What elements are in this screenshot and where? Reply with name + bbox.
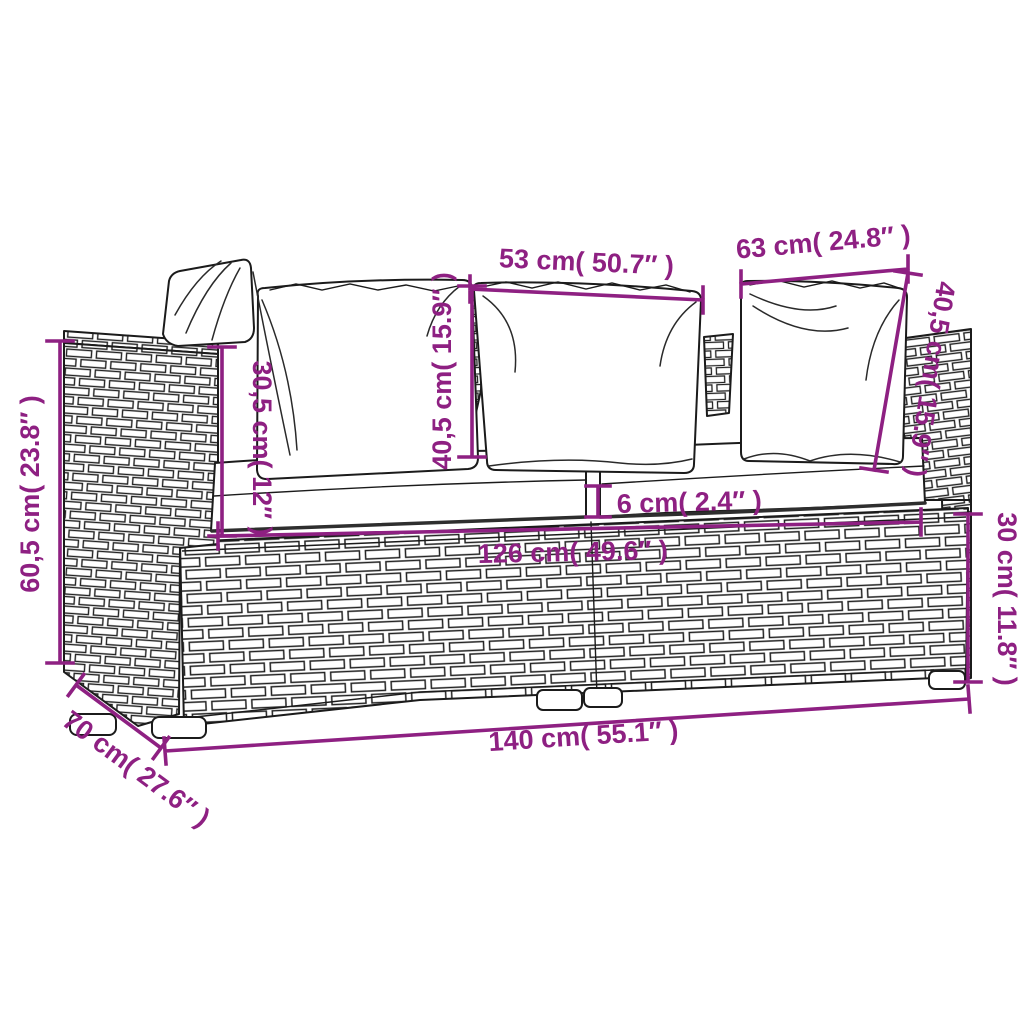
back-post-center	[704, 334, 733, 416]
back-pillow-right	[741, 280, 907, 464]
sofa-foot-middle-left	[537, 690, 582, 710]
back-pillow-corner	[163, 260, 254, 346]
dim-label: 53 cm( 50.7″ )	[498, 243, 674, 281]
dim-label: 140 cm( 55.1″ )	[488, 715, 680, 757]
back-pillow-center	[474, 282, 701, 473]
sofa-foot-middle-right	[584, 688, 622, 707]
dim-label: 126 cm( 49.6″ )	[477, 535, 668, 569]
diagram-canvas: 53 cm( 50.7″ ) 63 cm( 24.8″ ) 40,5 cm( 1…	[0, 0, 1024, 1024]
dim-label: 30,5 cm( 12″ )	[247, 360, 277, 535]
dim-label: 40,5 cm( 15.9″ )	[427, 272, 457, 470]
dim-label: 30 cm( 11.8″ )	[992, 512, 1022, 686]
dim-label: 60,5 cm( 23.8″ )	[15, 395, 45, 593]
dim-label: 63 cm( 24.8″ )	[735, 219, 912, 264]
product-dimension-diagram: 53 cm( 50.7″ ) 63 cm( 24.8″ ) 40,5 cm( 1…	[0, 0, 1024, 1024]
sofa-illustration	[64, 260, 971, 738]
dim-label: 6 cm( 2.4″ )	[616, 485, 762, 519]
sofa-foot-left-front	[152, 717, 206, 738]
sofa-foot-right	[929, 671, 965, 689]
